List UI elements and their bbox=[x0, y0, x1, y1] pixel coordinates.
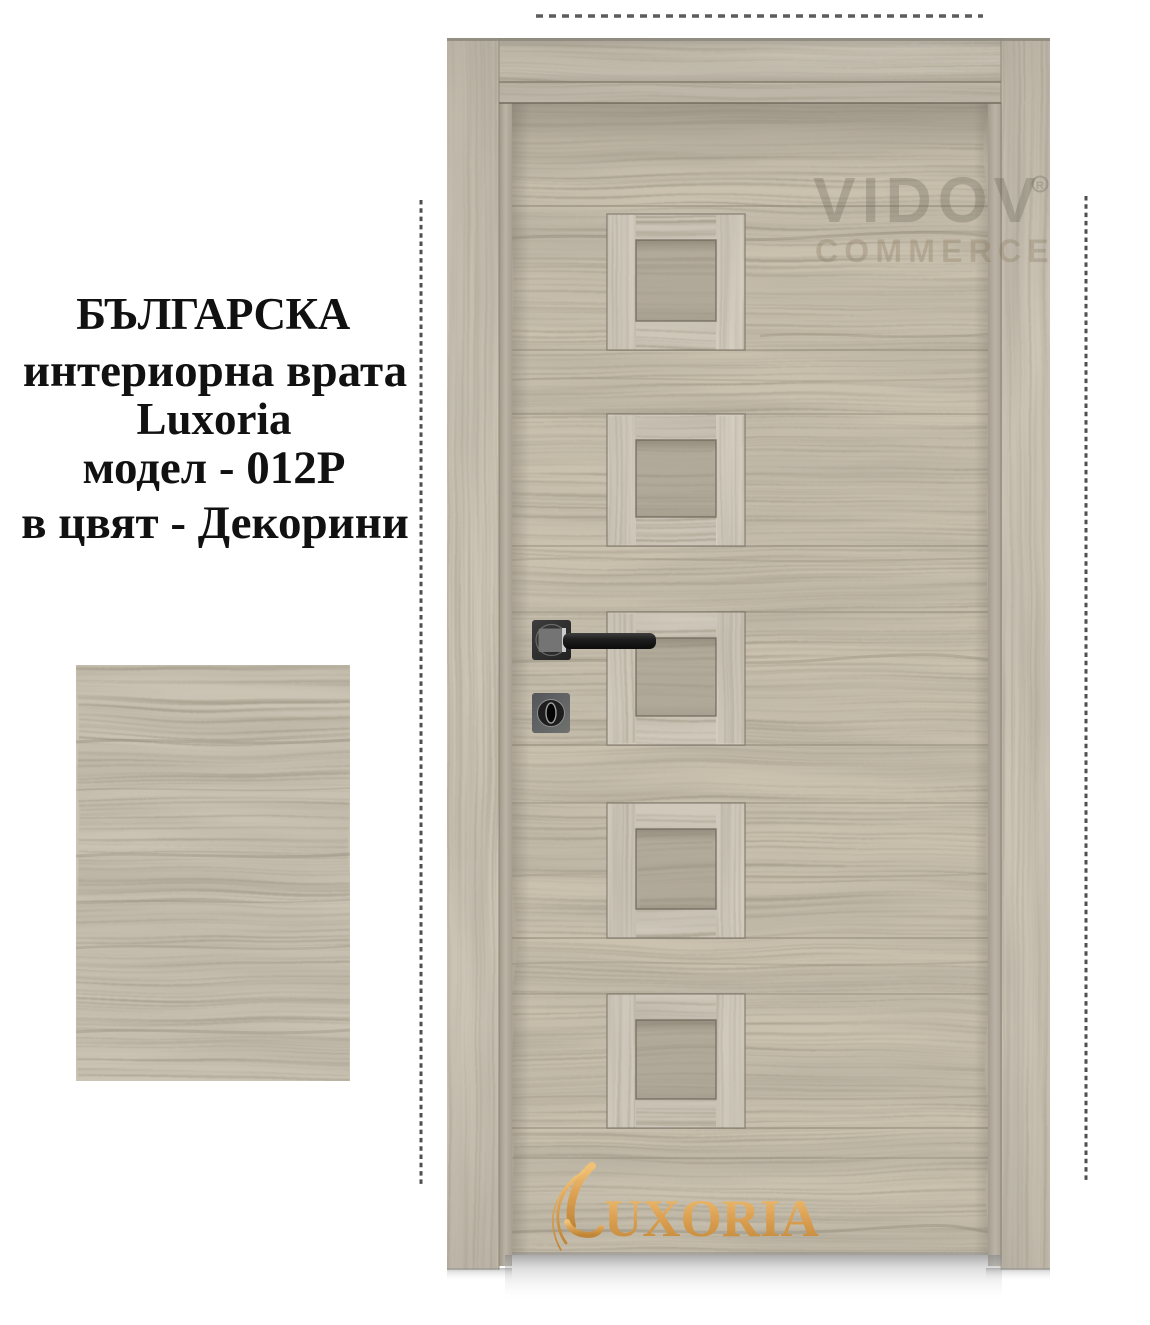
svg-text:COMMERCE: COMMERCE bbox=[815, 233, 1055, 269]
svg-text:UXORIA: UXORIA bbox=[604, 1190, 819, 1248]
svg-text:интериорна врата: интериорна врата bbox=[23, 345, 407, 397]
svg-text:R: R bbox=[1036, 180, 1044, 192]
svg-text:в цвят - Декорини: в цвят - Декорини bbox=[21, 497, 409, 549]
svg-text:VIDOV: VIDOV bbox=[813, 164, 1042, 236]
svg-text:модел - 012P: модел - 012P bbox=[83, 442, 346, 494]
svg-text:БЪЛГАРСКА: БЪЛГАРСКА bbox=[76, 289, 350, 339]
svg-text:Luxoria: Luxoria bbox=[136, 394, 291, 444]
